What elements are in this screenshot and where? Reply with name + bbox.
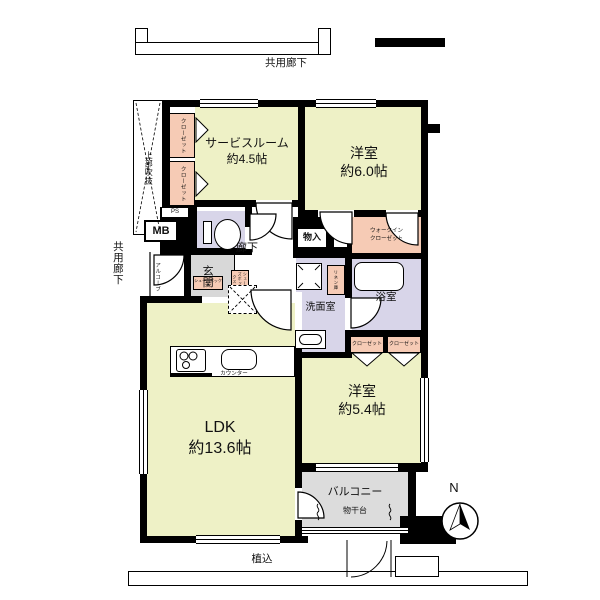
corridor-canopy-right xyxy=(318,28,331,55)
toilet-tank xyxy=(203,221,212,244)
bedroom5-name: 洋室 xyxy=(348,382,376,400)
bedroom5-label: 洋室 約5.4帖 xyxy=(312,381,412,419)
wic-line2: クローゼット xyxy=(370,235,403,243)
balcony-label: バルコニー xyxy=(312,486,398,499)
top-right-wall-bar xyxy=(375,38,445,47)
window-bedroom5-right xyxy=(420,378,429,462)
balcony-area xyxy=(302,472,408,532)
window-ldk-bottom xyxy=(196,535,280,544)
service-closet-2: クローゼット xyxy=(169,161,195,206)
washing-machine-space xyxy=(296,263,322,290)
balcony-railing xyxy=(302,527,408,534)
bath-label: 浴室 xyxy=(366,291,406,304)
storage-box: 物入 xyxy=(296,227,328,249)
corridor-top-label: 共用廊下 xyxy=(252,56,320,71)
ldk-label: LDK 約13.6帖 xyxy=(164,416,276,462)
washroom-label: 洗面室 xyxy=(296,301,345,314)
bedroom6-area: 約6.0帖 xyxy=(340,162,387,180)
gap-wic-door xyxy=(386,210,418,217)
bedroom5-area: 約5.4帖 xyxy=(338,400,385,418)
void-space: 上部吹抜 xyxy=(133,100,163,235)
window-service-top xyxy=(200,99,258,108)
wall-alcove-right xyxy=(184,249,191,303)
service-room-name: サービスルーム xyxy=(205,136,289,152)
bedroom5-closet-2: クローゼット xyxy=(387,336,421,353)
ldk-area: 約13.6帖 xyxy=(188,439,251,460)
wall-bedroom5-bottom-left xyxy=(295,463,316,472)
wall-toilet-right xyxy=(245,207,252,227)
wall-toilet-left xyxy=(190,207,197,253)
wall-washroom-bottom xyxy=(293,352,352,358)
wall-balcony-right xyxy=(408,465,416,518)
floor-hatch xyxy=(228,285,257,314)
bedroom6-name: 洋室 xyxy=(350,144,378,162)
planting-bar xyxy=(128,571,528,586)
window-bedroom5-balcony xyxy=(316,463,398,472)
wall-chunk-bottom-right xyxy=(400,516,456,544)
linen-storage: リネン庫 xyxy=(327,265,345,295)
wic-label: ウォークイン クローゼット xyxy=(355,223,418,247)
pipe-space-small: PS xyxy=(162,208,188,217)
gap-bath-door xyxy=(345,298,352,330)
floor-plan: 共用廊下 共用廊下 上部吹抜 クローゼット xyxy=(0,0,600,600)
stove xyxy=(176,349,206,372)
pipe-space-box: PS xyxy=(332,227,349,249)
window-bedroom6-top xyxy=(316,99,376,108)
meter-box: MB xyxy=(144,220,178,242)
service-room-label: サービスルーム 約4.5帖 xyxy=(198,136,296,168)
corridor-left-label: 共用廊下 xyxy=(109,230,125,296)
drying-stand-label: 物干台 xyxy=(326,506,384,517)
bedroom6-label: 洋室 約6.0帖 xyxy=(320,143,408,181)
wall-wic-bottom xyxy=(345,253,428,259)
service-closet-1: クローゼット xyxy=(169,113,195,158)
corridor-canopy-bar xyxy=(135,42,331,55)
gap-service-door xyxy=(256,200,292,207)
entrance-label: 玄関 xyxy=(198,258,216,294)
ldk-name: LDK xyxy=(204,418,235,439)
gap-balcony-door xyxy=(295,488,302,520)
alcove-label: アルコーブ xyxy=(152,258,161,296)
toilet-door-arc xyxy=(250,214,276,240)
counter-label: カウンター xyxy=(213,371,255,379)
wall-bump-topright xyxy=(428,124,440,133)
exterior-step-box xyxy=(395,556,439,577)
gap-bedroom6-door xyxy=(318,210,354,217)
wall-service-bedroom6 xyxy=(298,100,305,210)
service-door-arc xyxy=(256,203,292,239)
wall-entrance-bottom xyxy=(140,296,202,303)
window-ldk-left xyxy=(139,390,148,474)
vanity-sink xyxy=(295,330,326,349)
service-room-area: 約4.5帖 xyxy=(227,152,268,168)
kitchen-sink xyxy=(221,349,257,370)
bathtub xyxy=(354,262,404,291)
bedroom5-closet-1: クローゼット xyxy=(350,336,384,353)
planting-label: 植込 xyxy=(240,553,284,567)
wic-line1: ウォークイン xyxy=(370,227,403,235)
hallway-label: 廊下 xyxy=(225,241,269,255)
north-label: N xyxy=(446,480,462,496)
counter-edge xyxy=(170,373,212,377)
